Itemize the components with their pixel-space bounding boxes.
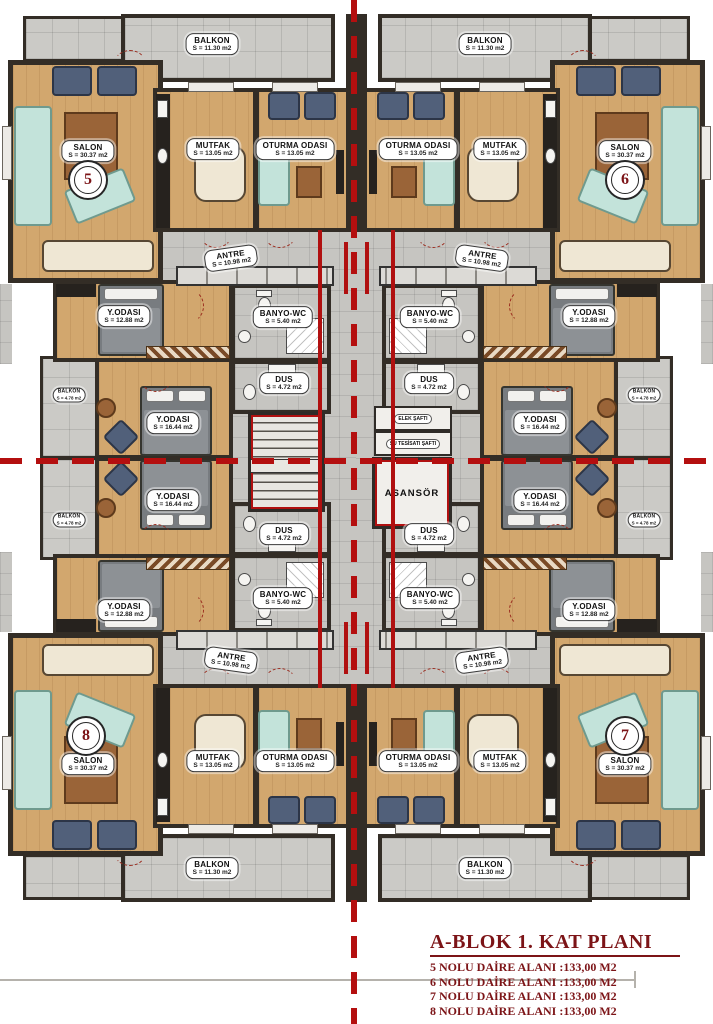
label-mutfak-u6: MUTFAKS = 13.05 m2 [473,138,526,160]
unit-number-7: 7 [605,716,645,756]
unit8-area-line: 8 NOLU DAİRE ALANI :133,00 M2 [430,1004,680,1019]
label-yatak1-u6: Y.ODASIS = 12.88 m2 [562,305,615,327]
label-yatak2-u7: Y.ODASIS = 16.44 m2 [513,489,566,511]
unit5-area-line: 5 NOLU DAİRE ALANI :133,00 M2 [430,960,680,975]
unit-number-6: 6 [605,160,645,200]
label-balkon-u5: BALKONS = 11.30 m2 [186,33,239,55]
label-balkon-u6: BALKONS = 11.30 m2 [459,33,512,55]
label-salon-u8: SALONS = 30.37 m2 [61,753,114,775]
stairwell [248,412,325,512]
label-balkon-yan-u5: BALKONS = 4.78 m2 [53,388,86,403]
label-yatak2-u6: Y.ODASIS = 16.44 m2 [513,412,566,434]
label-oturma-u7: OTURMA ODASIS = 13.05 m2 [379,750,458,772]
label-oturma-u5: OTURMA ODASIS = 13.05 m2 [256,138,335,160]
elevator: ASANSÖR [372,457,452,529]
label-balkon-yan-u7: BALKONS = 4.78 m2 [628,513,661,528]
label-salon-u7: SALONS = 30.37 m2 [598,753,651,775]
label-mutfak-u8: MUTFAKS = 13.05 m2 [186,750,239,772]
label-oturma-u6: OTURMA ODASIS = 13.05 m2 [379,138,458,160]
unit7-area-line: 7 NOLU DAİRE ALANI :133,00 M2 [430,989,680,1004]
label-banyo-u8: BANYO-WCS = 5.40 m2 [253,587,313,609]
label-yatak2-u5: Y.ODASIS = 16.44 m2 [146,412,199,434]
label-yatak1-u7: Y.ODASIS = 12.88 m2 [562,599,615,621]
label-mutfak-u7: MUTFAKS = 13.05 m2 [473,750,526,772]
stair-landing [251,459,322,473]
label-yatak2-u8: Y.ODASIS = 16.44 m2 [146,489,199,511]
water-shaft: SU TESİSATI ŞAFTI [374,431,452,456]
label-dus-u5: DUSS = 4.72 m2 [259,372,309,394]
label-dus-u8: DUSS = 4.72 m2 [259,523,309,545]
label-dus-u6: DUSS = 4.72 m2 [404,372,454,394]
label-banyo-u6: BANYO-WCS = 5.40 m2 [400,306,460,328]
label-banyo-u7: BANYO-WCS = 5.40 m2 [400,587,460,609]
label-balkon-u7: BALKONS = 11.30 m2 [459,857,512,879]
corridor-wall-red [391,230,395,688]
corridor-wall-red [318,230,322,688]
label-dus-u7: DUSS = 4.72 m2 [404,523,454,545]
label-balkon-u8: BALKONS = 11.30 m2 [186,857,239,879]
label-oturma-u8: OTURMA ODASIS = 13.05 m2 [256,750,335,772]
label-yatak1-u5: Y.ODASIS = 12.88 m2 [97,305,150,327]
label-banyo-u5: BANYO-WCS = 5.40 m2 [253,306,313,328]
electrical-shaft-label: ELEK ŞAFTI [394,414,431,424]
label-salon-u5: SALONS = 30.37 m2 [61,140,114,162]
title-block: A-BLOK 1. KAT PLANI 5 NOLU DAİRE ALANI :… [430,931,680,1018]
unit-number-5: 5 [68,160,108,200]
building-core: ELEK ŞAFTI SU TESİSATI ŞAFTI ASANSÖR [0,0,713,916]
unit6-area-line: 6 NOLU DAİRE ALANI :133,00 M2 [430,975,680,990]
label-salon-u6: SALONS = 30.37 m2 [598,140,651,162]
label-mutfak-u5: MUTFAKS = 13.05 m2 [186,138,239,160]
label-balkon-yan-u8: BALKONS = 4.78 m2 [53,513,86,528]
electrical-shaft: ELEK ŞAFTI [374,406,452,431]
floor-plan: ELEK ŞAFTI SU TESİSATI ŞAFTI ASANSÖR 5 6… [0,0,713,916]
unit-number-8: 8 [66,716,106,756]
label-yatak1-u8: Y.ODASIS = 12.88 m2 [97,599,150,621]
plan-title: A-BLOK 1. KAT PLANI [430,931,680,957]
label-balkon-yan-u6: BALKONS = 4.78 m2 [628,388,661,403]
